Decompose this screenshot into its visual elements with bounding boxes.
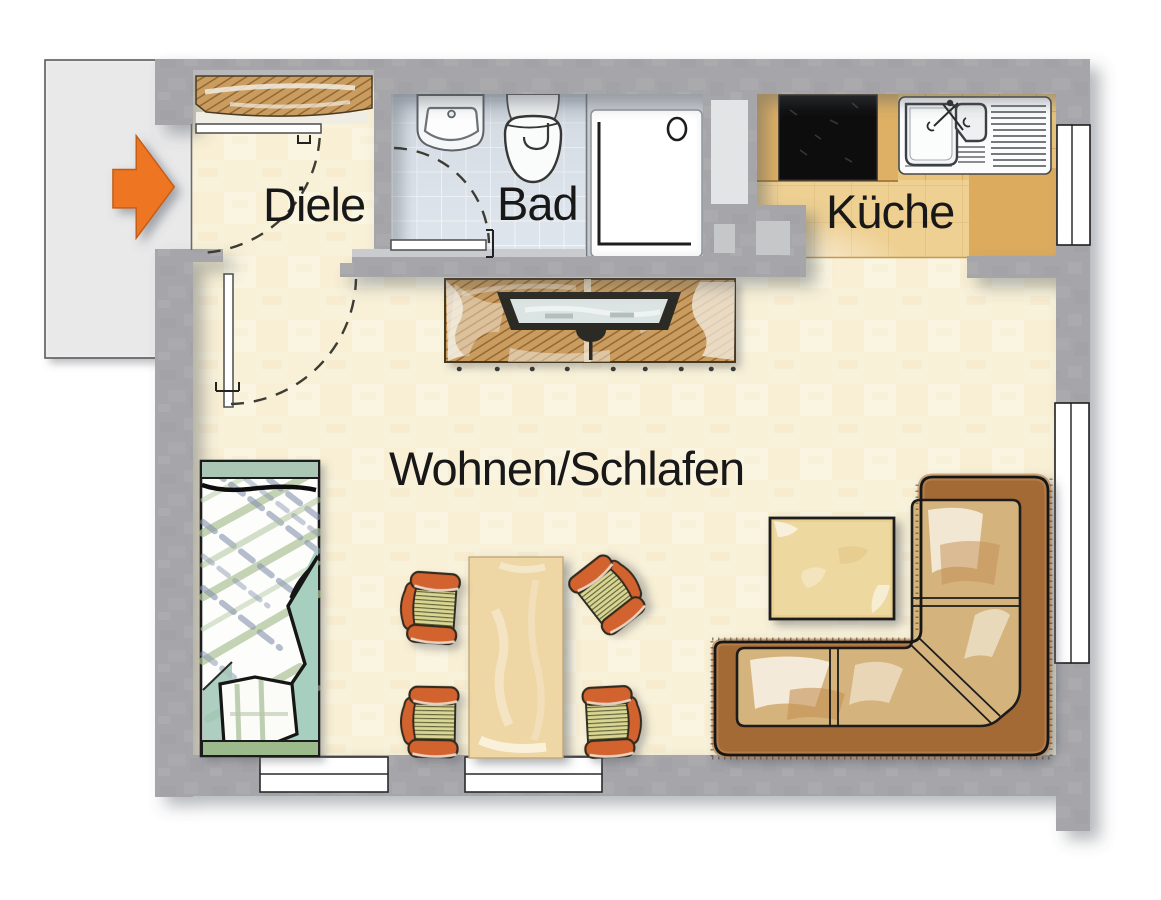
- svg-text:Wohnen/Schlafen: Wohnen/Schlafen: [389, 442, 744, 495]
- svg-text:Bad: Bad: [497, 177, 578, 230]
- svg-text:Küche: Küche: [826, 185, 954, 238]
- svg-text:Diele: Diele: [263, 178, 365, 231]
